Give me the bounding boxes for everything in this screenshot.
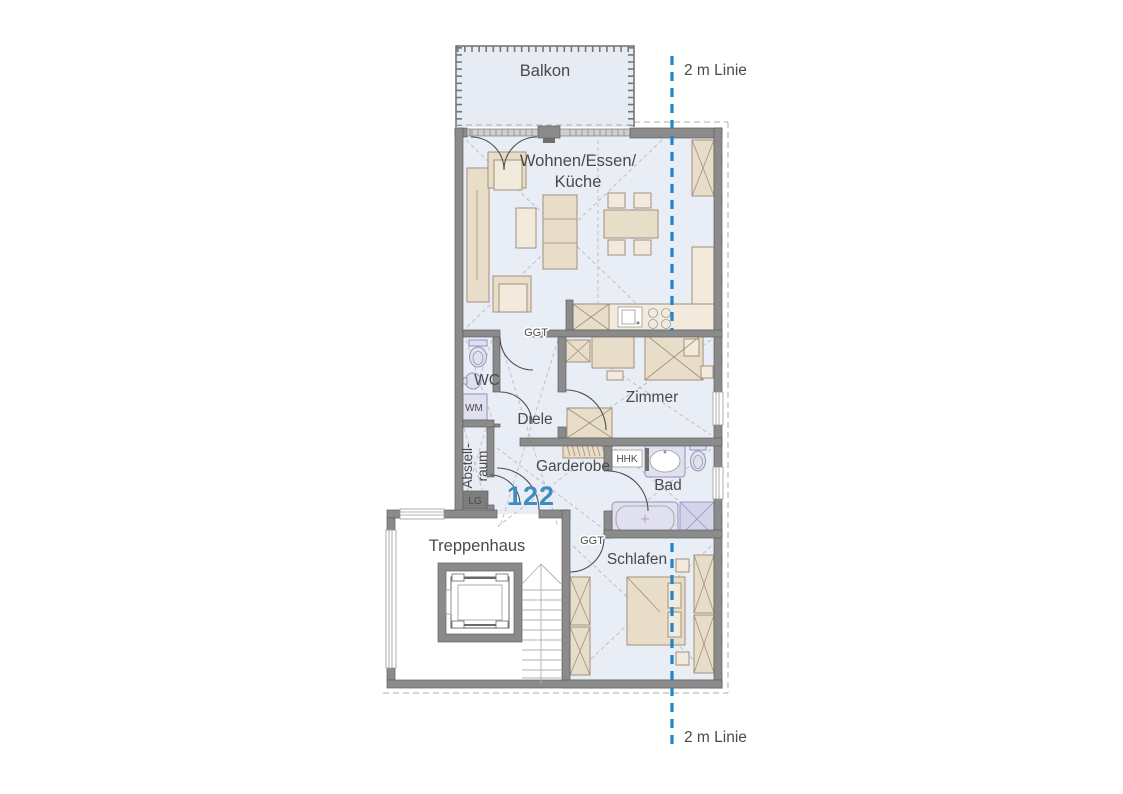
kitchen-sink bbox=[618, 307, 642, 327]
elevator bbox=[438, 563, 522, 642]
label-ggt-upper: GGT bbox=[524, 327, 548, 339]
window-mullion bbox=[538, 126, 560, 138]
stool-zimmer bbox=[607, 371, 623, 380]
window-zimmer-2 bbox=[713, 467, 723, 499]
stairs bbox=[522, 564, 561, 684]
label-hhk: HHK bbox=[616, 454, 637, 465]
wardrobe-living bbox=[692, 140, 714, 196]
label-balkon: Balkon bbox=[520, 62, 570, 80]
label-treppenhaus: Treppenhaus bbox=[429, 537, 526, 555]
bed-zimmer bbox=[645, 334, 703, 380]
wardrobe-zimmer bbox=[566, 340, 590, 362]
balcony-outline bbox=[456, 46, 634, 127]
label-ggt-lower: GGT bbox=[580, 535, 604, 547]
balcony bbox=[456, 46, 634, 127]
label-bad: Bad bbox=[654, 477, 682, 494]
cabinet-zimmer bbox=[592, 336, 634, 368]
label-garderobe: Garderobe bbox=[536, 458, 610, 475]
label-schlafen: Schlafen bbox=[607, 551, 667, 568]
label-lg: LG bbox=[468, 496, 482, 507]
unit-number: 122 bbox=[507, 481, 555, 511]
label-wohnen-line2: Küche bbox=[555, 173, 602, 191]
window-treppenhaus-left bbox=[386, 530, 396, 668]
window-zimmer-1 bbox=[713, 392, 723, 425]
label-2m-top: 2 m Linie bbox=[684, 62, 747, 79]
coffee-table bbox=[516, 208, 536, 248]
hhk-radiator-bar bbox=[645, 448, 649, 471]
label-abstell-line2: raum bbox=[475, 451, 490, 482]
bad-toilet-icon bbox=[690, 444, 706, 471]
sofa bbox=[543, 195, 577, 269]
sideboard bbox=[467, 168, 489, 302]
label-wohnen-line1: Wohnen/Essen/ bbox=[520, 152, 637, 170]
label-2m-bottom: 2 m Linie bbox=[684, 729, 747, 746]
label-wm: WM bbox=[465, 403, 483, 414]
label-zimmer: Zimmer bbox=[626, 389, 679, 406]
wc-toilet-icon bbox=[469, 340, 487, 367]
floorplan-canvas: Balkon 2 m Linie 2 m Linie Wohnen/Essen/… bbox=[0, 0, 1123, 794]
nightstand-schlafen-top bbox=[676, 559, 689, 572]
bad-sink-icon bbox=[645, 444, 685, 477]
label-wc: WC bbox=[474, 372, 500, 389]
armchair-bottom bbox=[493, 276, 531, 312]
label-diele: Diele bbox=[517, 411, 552, 428]
nightstand-zimmer bbox=[701, 366, 713, 378]
floorplan-drawing: Balkon 2 m Linie 2 m Linie Wohnen/Essen/… bbox=[0, 0, 1123, 794]
window-treppenhaus-top bbox=[400, 509, 444, 519]
nightstand-schlafen-bottom bbox=[676, 652, 689, 665]
bed-schlafen bbox=[627, 577, 685, 645]
label-abstell-line1: Abstell- bbox=[460, 443, 475, 488]
